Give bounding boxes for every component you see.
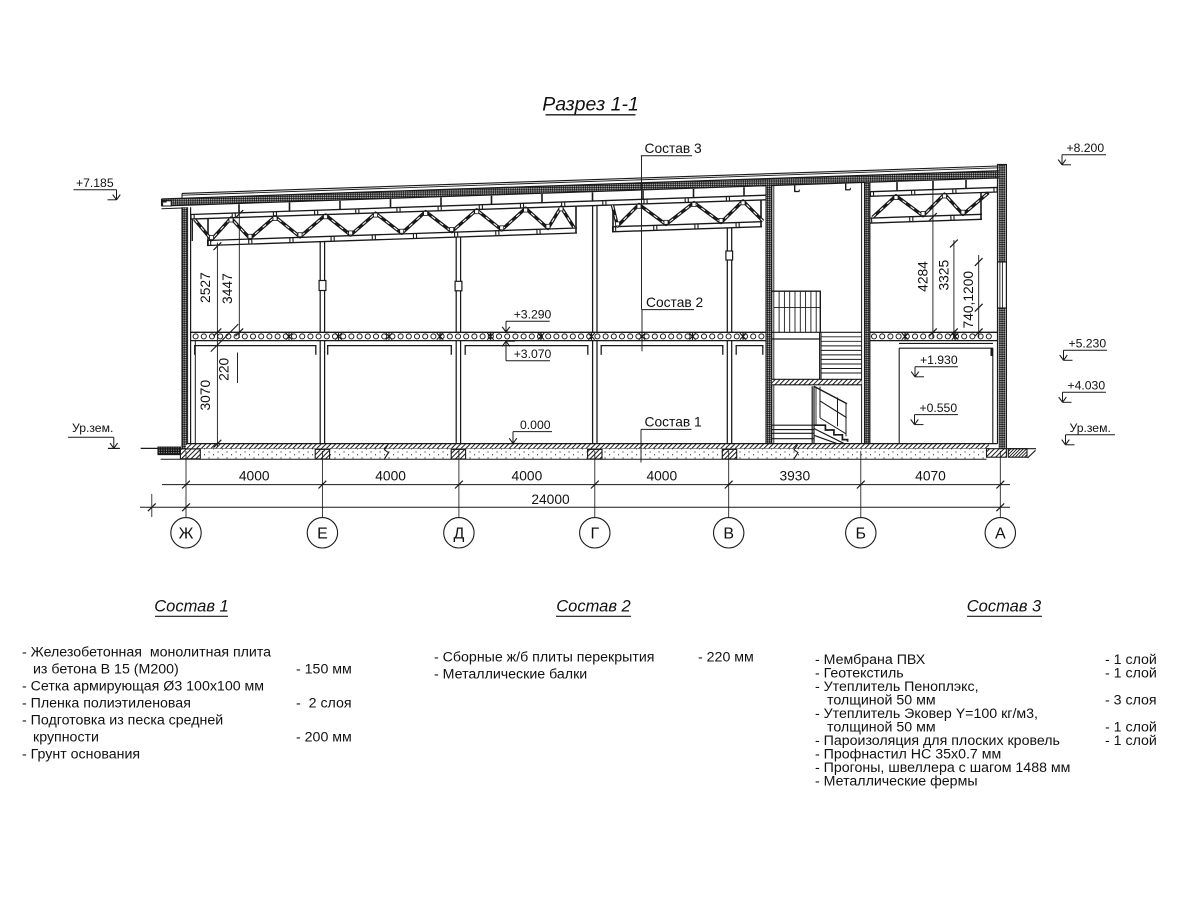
svg-text:+4.030: +4.030 [1068, 379, 1106, 393]
svg-text:- 220 мм: - 220 мм [698, 650, 754, 666]
svg-text:Ж: Ж [179, 525, 194, 542]
svg-text:+7.185: +7.185 [76, 176, 114, 190]
svg-text:Г: Г [590, 525, 599, 542]
svg-text:0.000: 0.000 [520, 418, 551, 432]
svg-text:- Сборные ж/б плиты перекрытия: - Сборные ж/б плиты перекрытия [434, 650, 654, 666]
svg-text:+8.200: +8.200 [1067, 141, 1105, 155]
svg-text:4000: 4000 [512, 469, 543, 484]
svg-text:4070: 4070 [915, 469, 946, 484]
svg-text:- Металлические балки: - Металлические балки [434, 667, 587, 683]
svg-text:+3.290: +3.290 [514, 307, 552, 321]
svg-text:740,1200: 740,1200 [961, 271, 976, 329]
svg-text:Ур.зем.: Ур.зем. [1070, 421, 1111, 435]
svg-text:4284: 4284 [916, 261, 931, 292]
svg-text:+5.230: +5.230 [1069, 337, 1107, 351]
svg-text:Б: Б [856, 525, 867, 542]
svg-text:2527: 2527 [198, 272, 213, 303]
svg-text:Е: Е [317, 525, 328, 542]
svg-text:+0.550: +0.550 [920, 401, 958, 415]
svg-text:Разрез 1-1: Разрез 1-1 [542, 93, 639, 115]
svg-text:4000: 4000 [375, 469, 406, 484]
svg-text:из бетона В 15 (М200): из бетона В 15 (М200) [33, 662, 179, 678]
svg-text:Состав 3: Состав 3 [967, 598, 1042, 616]
svg-text:Д: Д [453, 525, 464, 542]
svg-text:- Сетка армирующая Ø3 100х100: - Сетка армирующая Ø3 100х100 мм [22, 679, 264, 695]
svg-text:4000: 4000 [646, 469, 677, 484]
svg-text:- 1 слой: - 1 слой [1105, 666, 1157, 682]
svg-text:- Металлические фермы: - Металлические фермы [815, 774, 978, 790]
svg-text:24000: 24000 [531, 492, 570, 507]
svg-text:- Грунт основания: - Грунт основания [22, 747, 140, 763]
svg-text:- Пленка полиэтиленовая: - Пленка полиэтиленовая [22, 696, 191, 712]
svg-text:4000: 4000 [239, 469, 270, 484]
svg-text:В: В [723, 525, 734, 542]
svg-text:- 1 слой: - 1 слой [1105, 733, 1157, 749]
svg-text:3447: 3447 [220, 273, 235, 304]
svg-text:+3.070: +3.070 [514, 347, 552, 361]
svg-text:крупности: крупности [33, 730, 99, 746]
svg-text:Состав 1: Состав 1 [645, 415, 702, 430]
svg-text:3070: 3070 [198, 380, 213, 411]
svg-text:А: А [995, 525, 1006, 542]
svg-text:220: 220 [217, 357, 232, 380]
svg-text:Ур.зем.: Ур.зем. [72, 421, 113, 435]
svg-text:- 3 слоя: - 3 слоя [1105, 693, 1157, 709]
svg-text:- 150 мм: - 150 мм [296, 662, 352, 678]
svg-text:Состав 2: Состав 2 [646, 295, 703, 310]
svg-text:Состав 1: Состав 1 [154, 598, 228, 616]
svg-text:- 200 мм: - 200 мм [296, 730, 352, 746]
svg-text:- Подготовка из песка средней: - Подготовка из песка средней [22, 713, 223, 729]
svg-text:- Железобетонная монолитная п: - Железобетонная монолитная плита [22, 645, 271, 661]
svg-text:Состав 2: Состав 2 [556, 598, 630, 616]
svg-text:3325: 3325 [937, 260, 952, 291]
svg-text:3930: 3930 [779, 469, 810, 484]
svg-text:Состав 3: Состав 3 [645, 141, 703, 156]
svg-text:- 2 слоя: - 2 слоя [296, 696, 352, 712]
svg-text:+1.930: +1.930 [920, 353, 958, 367]
